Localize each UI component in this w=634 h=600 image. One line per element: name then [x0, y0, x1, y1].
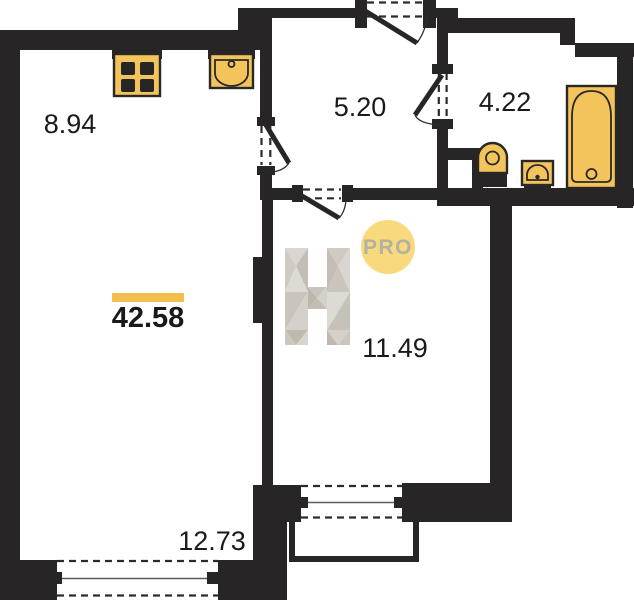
bathtub-icon: [567, 86, 616, 188]
total-area-value: 42.58: [112, 302, 185, 334]
right-wall: [617, 43, 633, 208]
bathroom-top-step: [560, 18, 575, 45]
room-right-wall: [490, 206, 512, 485]
room-window-jamb-right: [394, 497, 405, 508]
pilaster: [253, 257, 262, 323]
floor-plan-drawing: PRO 8.94 5.20 4.22 42.58 11.49 12.73: [0, 0, 634, 600]
room-left-wall: [262, 200, 273, 487]
bathroom-left-wall-lower: [437, 129, 448, 188]
total-area-accent-bar: [112, 293, 184, 302]
living-window-block-right: [218, 560, 287, 600]
stove-burner: [140, 62, 154, 75]
living-zone-area-label: 12.73: [178, 526, 246, 556]
toilet-icon: [478, 143, 507, 187]
balcony-outline: [292, 522, 416, 559]
stove-icon: [112, 50, 162, 96]
living-window: [50, 561, 219, 596]
entry-top-wall-left: [238, 8, 362, 18]
washbasin-icon: [522, 161, 553, 191]
kitchen-sink-icon: [208, 50, 255, 88]
pro-badge-label: PRO: [363, 236, 413, 259]
toilet-bowl: [478, 143, 507, 173]
kitchen-door-hinge-top: [257, 117, 275, 126]
kitchen-top-wall: [0, 30, 262, 50]
room-window-block-right: [402, 483, 512, 522]
kitchen-door-hinge-bottom: [257, 166, 275, 175]
bathroom-top-wall: [448, 18, 575, 33]
washbasin-drain: [535, 175, 539, 179]
total-area-label: 42.58: [112, 293, 185, 334]
room-corner-block: [253, 485, 301, 522]
entry-door-jamb-left: [355, 0, 367, 28]
room-door-opening: [303, 190, 341, 199]
h-logo: PRO: [285, 220, 415, 345]
stove-burner: [121, 62, 135, 75]
living-window-jamb-left: [50, 572, 62, 584]
kitchen-zone-area-label: 8.94: [44, 109, 97, 139]
room-window-jamb-left: [297, 497, 308, 508]
room-door-arc: [339, 200, 346, 218]
entry-door-leaf: [362, 9, 417, 43]
hall-bottom-wall-right: [353, 188, 437, 200]
room-door-hinge-right: [342, 185, 353, 202]
floor-plan: PRO 8.94 5.20 4.22 42.58 11.49 12.73: [0, 0, 634, 600]
room-area-label: 11.49: [362, 333, 428, 363]
living-window-jamb-right: [207, 572, 219, 584]
stove-burner: [140, 79, 154, 92]
room-window: [297, 486, 405, 518]
left-wall: [0, 30, 20, 600]
room-door-leaf: [297, 193, 339, 218]
bathroom-area-label: 4.22: [479, 87, 532, 117]
hall-bottom-wall-left: [260, 188, 295, 200]
stove-burner: [121, 79, 135, 92]
bathroom-door-hinge-top: [432, 64, 453, 74]
kitchen-divider-upper: [260, 50, 272, 117]
hallway-area-label: 5.20: [334, 92, 387, 122]
